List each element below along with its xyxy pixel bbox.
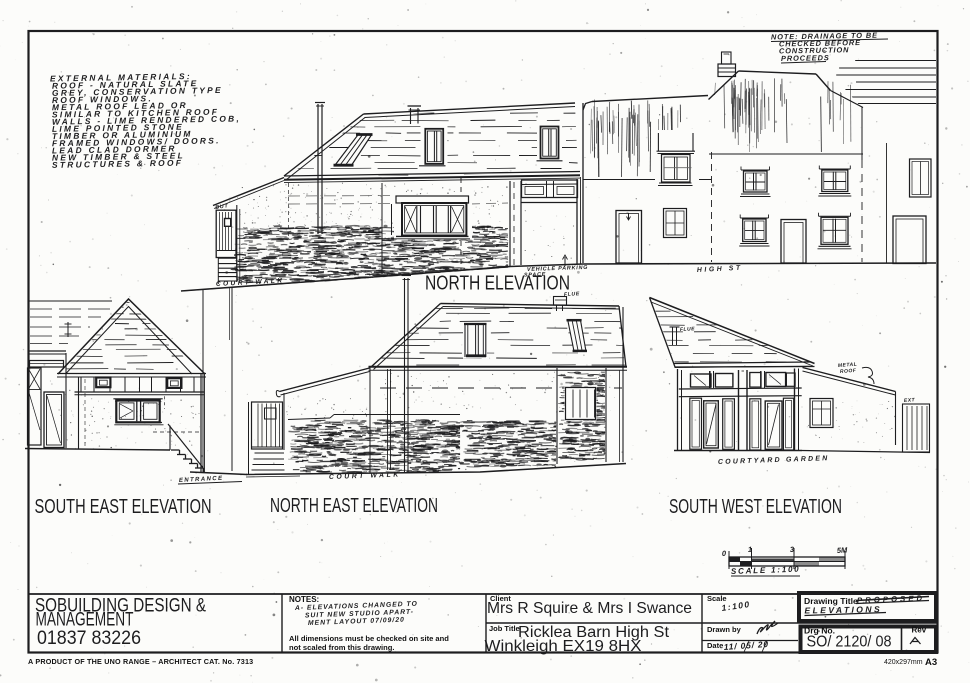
svg-text:Scale: Scale [707,594,727,603]
svg-text:FLUE: FLUE [680,326,696,333]
svg-text:SOUTH WEST ELEVATION: SOUTH WEST ELEVATION [669,495,842,518]
svg-text:Job Title: Job Title [489,624,520,633]
svg-text:EXT: EXT [904,397,916,404]
svg-text:NORTH EAST ELEVATION: NORTH EAST ELEVATION [270,494,438,517]
svg-text:Date: Date [707,641,723,650]
svg-text:Drawn by: Drawn by [707,625,742,634]
svg-text:Winkleigh EX19 8HX: Winkleigh EX19 8HX [485,638,642,655]
svg-text:Mrs R Squire & Mrs I Swance: Mrs R Squire & Mrs I Swance [487,600,692,617]
svg-text:All dimensions must be checked: All dimensions must be checked on site a… [289,634,449,643]
svg-text:SO/ 2120/ 08: SO/ 2120/ 08 [807,634,892,651]
svg-text:A PRODUCT OF THE UNO RANGE – A: A PRODUCT OF THE UNO RANGE – ARCHITECT C… [28,657,253,666]
svg-text:A3: A3 [925,657,937,668]
svg-text:NORTH ELEVATION: NORTH ELEVATION [425,272,570,295]
svg-text:5M: 5M [837,545,849,555]
svg-text:Rev: Rev [912,626,927,635]
svg-text:420x297mm: 420x297mm [884,659,923,666]
svg-text:1: 1 [748,545,753,554]
svg-text:not scaled from this drawing.: not scaled from this drawing. [289,643,394,652]
svg-text:NOTES:: NOTES: [289,595,319,604]
svg-text:ROOF: ROOF [840,368,857,375]
svg-text:SOUTH EAST ELEVATION: SOUTH EAST ELEVATION [35,495,212,518]
svg-text:01837 83226: 01837 83226 [37,628,141,649]
